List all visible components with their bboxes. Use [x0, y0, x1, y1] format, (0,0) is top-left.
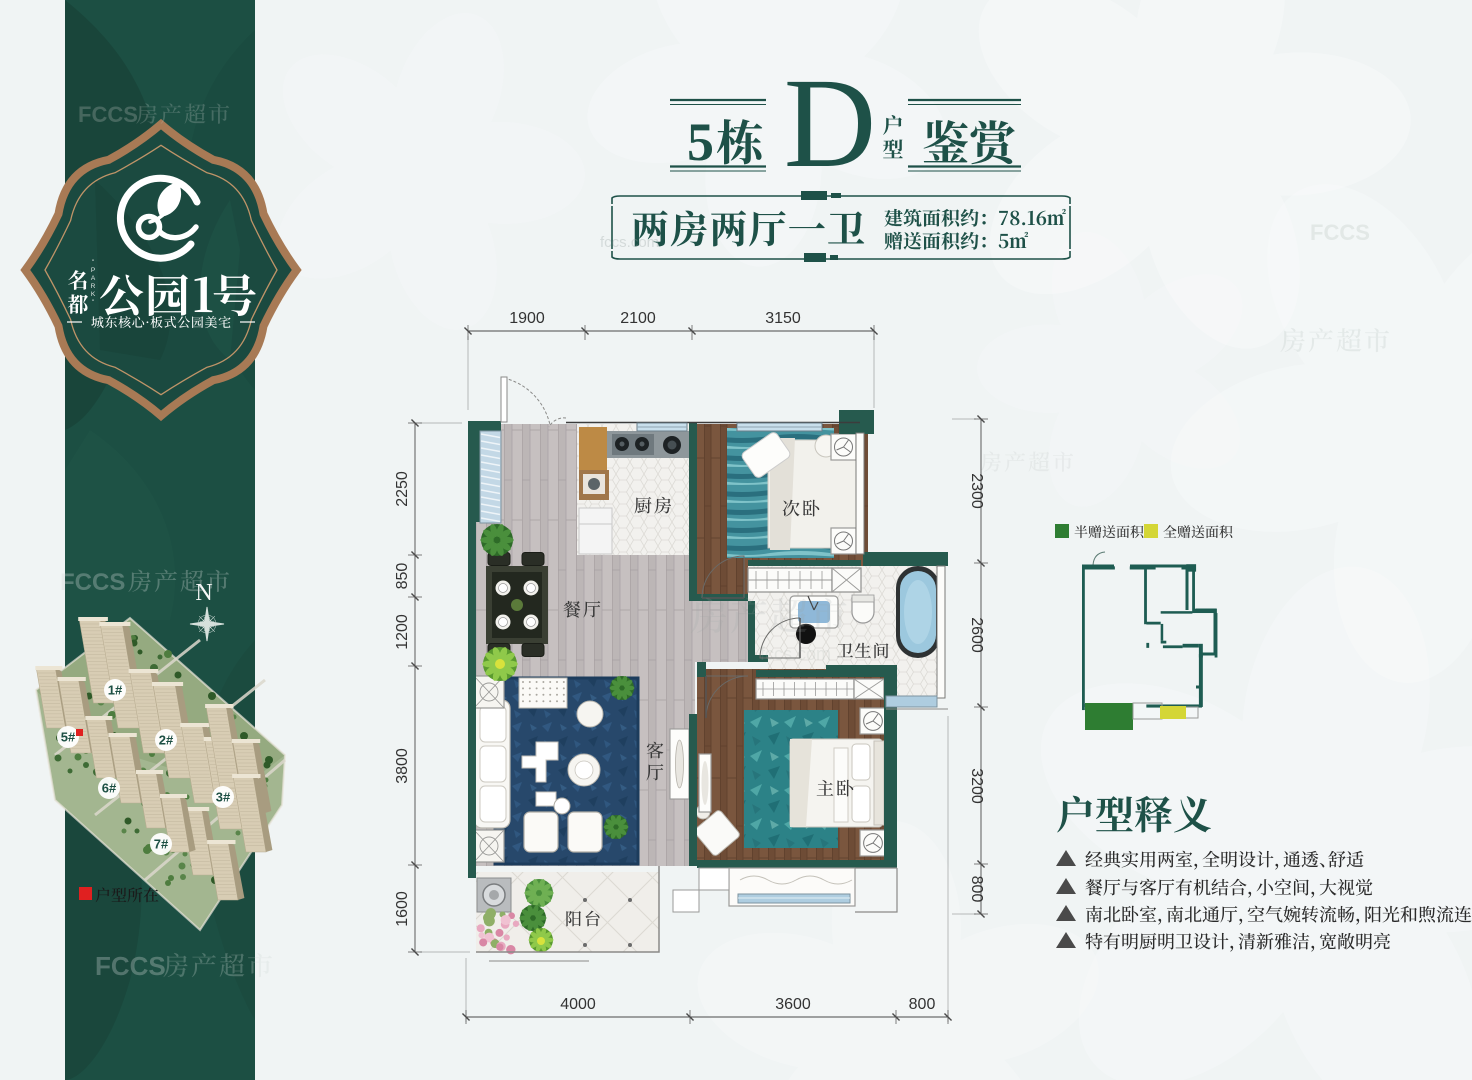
- svg-text:FCCS: FCCS: [95, 951, 166, 981]
- svg-text:1600: 1600: [394, 891, 411, 927]
- svg-text:3#: 3#: [216, 790, 231, 805]
- svg-text:1900: 1900: [509, 310, 545, 327]
- svg-text:4000: 4000: [560, 996, 596, 1013]
- svg-text:FCCS: FCCS: [78, 102, 138, 127]
- svg-text:FCCS: FCCS: [1310, 220, 1370, 245]
- svg-text:P: P: [91, 267, 95, 274]
- svg-text:800: 800: [968, 876, 985, 903]
- svg-text:N: N: [195, 580, 212, 606]
- svg-text:fccs.com: fccs.com: [760, 644, 831, 664]
- svg-text:7#: 7#: [154, 837, 169, 852]
- svg-text:3150: 3150: [765, 310, 801, 327]
- svg-text:2300: 2300: [968, 473, 985, 509]
- svg-text:D: D: [784, 52, 876, 194]
- svg-text:2250: 2250: [394, 471, 411, 507]
- svg-text:K: K: [91, 291, 96, 298]
- svg-text:3800: 3800: [394, 748, 411, 784]
- svg-text:1200: 1200: [394, 614, 411, 650]
- svg-text:2100: 2100: [620, 310, 656, 327]
- svg-text:850: 850: [394, 563, 411, 590]
- svg-text:A: A: [91, 275, 96, 282]
- svg-text:5#: 5#: [61, 730, 76, 745]
- svg-text:6#: 6#: [102, 781, 117, 796]
- svg-text:FCCS: FCCS: [60, 569, 125, 596]
- svg-text:3600: 3600: [775, 996, 811, 1013]
- svg-text:800: 800: [909, 996, 936, 1013]
- svg-text:2#: 2#: [159, 733, 174, 748]
- svg-text:5: 5: [687, 112, 714, 172]
- svg-text:3200: 3200: [968, 768, 985, 804]
- svg-text:fccs.com: fccs.com: [600, 234, 659, 251]
- svg-text:2600: 2600: [968, 617, 985, 653]
- svg-text:1#: 1#: [108, 683, 123, 698]
- svg-text:R: R: [91, 283, 96, 290]
